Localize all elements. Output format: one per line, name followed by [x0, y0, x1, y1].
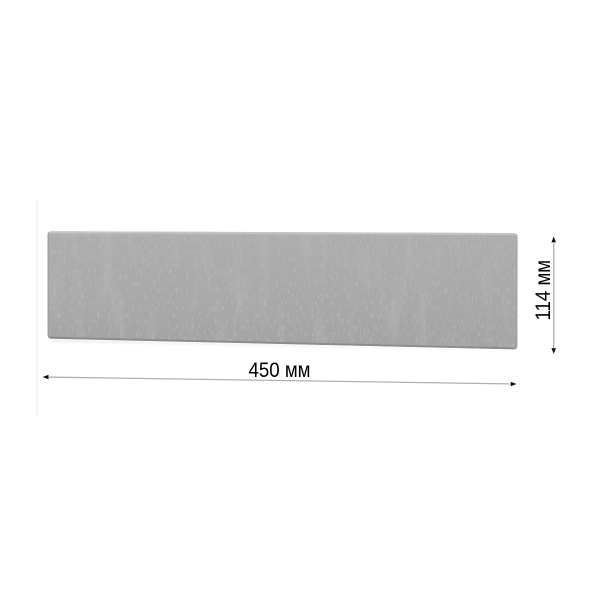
svg-text:114 мм: 114 мм [532, 260, 555, 321]
svg-text:450 мм: 450 мм [248, 359, 310, 382]
